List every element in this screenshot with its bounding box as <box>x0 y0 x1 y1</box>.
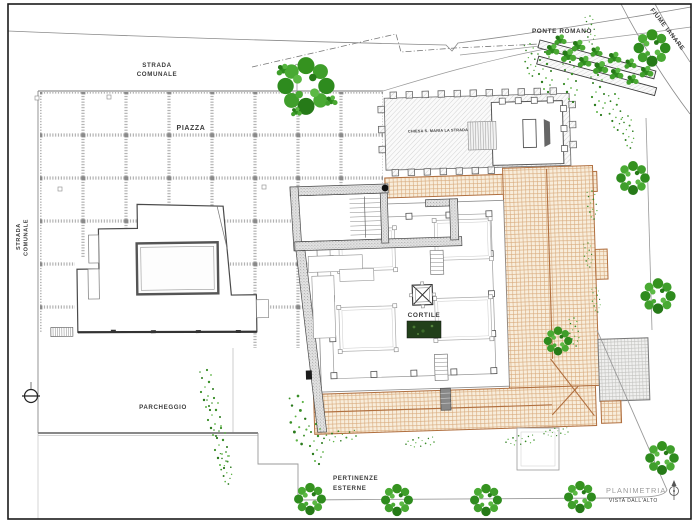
planimetria-drawing: CHIESA S. MARIA LA STRADA <box>0 0 700 525</box>
church-complex: CHIESA S. MARIA LA STRADA <box>377 87 577 176</box>
south-wing-roof <box>314 385 597 434</box>
label-strada-comunale-left: STRADA COMUNALE <box>16 219 30 256</box>
label-parcheggio: PARCHEGGIO <box>139 404 187 411</box>
church-entry-steps <box>468 121 497 150</box>
caption-planimetria: PLANIMETRIA <box>606 486 666 495</box>
caption-vista: VISTA DALL'ALTO <box>609 498 658 504</box>
entry-stairs <box>51 327 73 336</box>
label-pertinenze-1: PERTINENZE <box>333 475 378 482</box>
east-wing-roof <box>503 165 600 388</box>
svg-text:COMUNALE: COMUNALE <box>24 219 30 256</box>
label-strada-comunale-top-1: STRADA <box>142 62 171 69</box>
site-plan-canvas: CHIESA S. MARIA LA STRADA <box>0 0 700 525</box>
church-apse-wedge <box>544 119 551 147</box>
label-cortile: CORTILE <box>408 312 441 319</box>
label-ponte-romano: PONTE ROMANO <box>532 28 592 35</box>
label-piazza: PIAZZA <box>177 125 206 132</box>
cortile-photo-swatch <box>407 321 441 338</box>
label-pertinenze-2: ESTERNE <box>333 485 366 492</box>
svg-text:STRADA: STRADA <box>16 223 22 250</box>
roof-opening <box>137 242 219 294</box>
outbuilding <box>517 428 559 470</box>
fountain <box>409 281 436 308</box>
label-strada-comunale-top-2: COMUNALE <box>137 71 178 78</box>
church-altar <box>523 119 537 147</box>
